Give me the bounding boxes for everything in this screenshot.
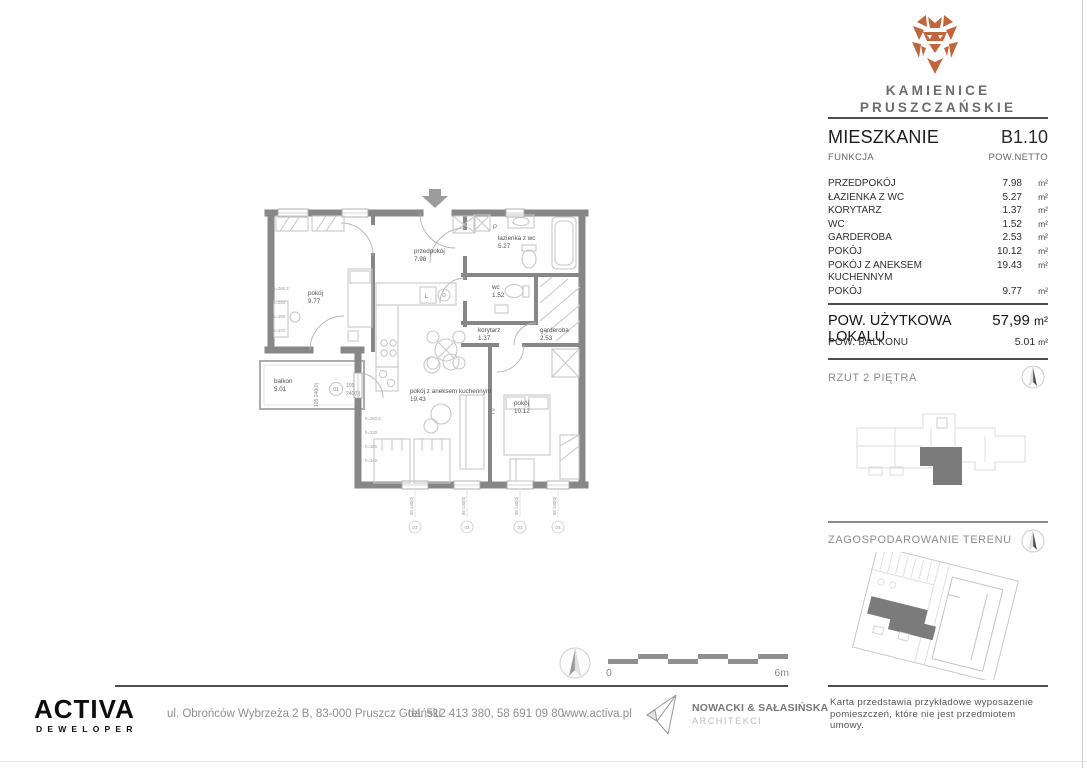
svg-text:03: 03 [517,525,523,530]
footer-website: www.activa.pl [562,708,632,720]
site-plan-map [835,552,1045,680]
plan-label-garderoba: garderoba [540,327,569,334]
svg-text:85 140(0): 85 140(0) [461,496,466,515]
developer-subtitle: DEWELOPER [36,724,138,734]
svg-text:03: 03 [555,525,561,530]
function-header: FUNKCJA POW.NETTO [828,152,1048,163]
page-bottom-edge [0,761,1087,762]
usable-area-unit: m² [1034,314,1048,328]
scale-end: 6m [774,667,789,679]
svg-text:h=220: h=220 [273,300,286,305]
room-row: ŁAZIENKA Z WC5.27m² [828,191,1048,205]
brand-line1: KAMIENICE [828,82,1048,99]
apartment-label: MIESZKANIE [828,127,1001,148]
svg-text:85 140(0): 85 140(0) [514,496,519,515]
svg-text:03: 03 [412,525,418,530]
svg-text:03: 03 [464,525,470,530]
plan-label-pokoj1: pokój [308,290,323,297]
room-list: PRZEDPOKÓJ7.98m² ŁAZIENKA Z WC5.27m² KOR… [828,177,1048,298]
footer-phone: tel. 512 413 380, 58 691 09 80 [408,708,564,720]
note-divider [828,685,1048,687]
usable-area-value: 57,99 [992,312,1030,329]
plan-label-pokoj2: pokój [514,400,529,407]
floor-plan: pokój 9.77 przedpokój 7.98 łazienka z wc… [252,183,604,553]
plan-area-lazienka: 5.27 [498,243,511,250]
developer-logo: ACTIVA DEWELOPER [34,696,138,734]
svg-text:h=180: h=180 [365,444,378,449]
divider [828,358,1048,360]
interior-walls [373,213,582,485]
divider [828,303,1048,305]
room-row: PRZEDPOKÓJ7.98m² [828,177,1048,191]
tv-label: TV [491,408,497,415]
compass-icon [1020,528,1046,554]
highlighted-unit [920,447,962,485]
svg-text:h=140: h=140 [365,458,378,463]
plan-area-garderoba: 2.53 [540,335,553,342]
balcony-door-tag: 105 240(0) 01 105 240(0) [314,382,361,407]
plan-label-wc: wc [491,284,500,291]
svg-text:h=260,2: h=260,2 [273,286,289,291]
divider [828,117,1048,119]
plan-area-pokoj2: 10.12 [514,408,530,415]
svg-text:105 240(0): 105 240(0) [314,382,320,407]
balcony-area-row: POW. BALKONU 5.01 m² [828,336,1048,348]
furniture [274,215,580,483]
footer-note: Karta przedstawia przykładowe wyposażeni… [830,697,1048,732]
entrance-arrow-icon [422,189,448,208]
plan-label-korytarz: korytarz [478,327,500,334]
plan-area-przedpokoj: 7.98 [414,256,427,263]
svg-text:01: 01 [333,387,339,393]
page-right-edge [1082,0,1083,768]
divider [828,521,1048,523]
room-row: POKÓJ Z ANEKSEM KUCHENNYM19.43m² [828,259,1048,285]
function-label: FUNKCJA [828,152,988,163]
room-row: POKÓJ9.77m² [828,285,1048,299]
balcony-area-unit: m² [1038,337,1048,347]
brand-line2: PRUSZCZAŃSKIE [828,99,1048,116]
site-section-title: ZAGOSPODAROWANIE TERENU [828,534,1012,546]
architect-block: NOWACKI & SAŁASIŃSKA ARCHITEKCI [692,702,828,726]
footer-address: ul. Obrońców Wybrzeża 2 B, 83-000 Pruszc… [167,708,441,720]
svg-text:h=220: h=220 [365,430,378,435]
plan-area-salon: 19.43 [410,396,426,403]
apartment-header: MIESZKANIE B1.10 [828,127,1048,148]
height-marks: h=260,2 h=220 h=180 h=140 h=260,2 h=220 … [273,286,381,463]
plan-area-wc: 1.52 [492,292,505,299]
architect-name: NOWACKI & SAŁASIŃSKA [692,702,828,714]
plan-label-salon: pokój z aneksem kuchennym [410,388,491,395]
room-row: KORYTARZ1.37m² [828,204,1048,218]
floor-section-title: RZUT 2 PIĘTRA [828,372,917,384]
room-row: POKÓJ10.12m² [828,245,1048,259]
brand-lion-logo-icon [907,13,963,79]
svg-text:85 140(0): 85 140(0) [409,496,414,515]
architect-logo-icon [644,692,686,740]
scale-bar: 0 6m [548,640,798,682]
plan-label-balkon: balkon [274,378,293,385]
note-line1: Karta przedstawia przykładowe wyposażeni… [830,697,1048,709]
note-line2: pomieszczeń, które nie jest przedmiotem … [830,709,1048,732]
plan-area-balkon: 5.01 [274,386,287,393]
svg-text:h=180: h=180 [273,314,286,319]
washer-label: P [493,225,497,231]
window-tags: 85 140(0) 85 140(0) 85 140(0) 85 140(0) … [409,489,564,533]
balcony-area-label: POW. BALKONU [828,337,1015,348]
plan-label-przedpokoj: przedpokój [414,248,445,255]
plan-area-korytarz: 1.37 [478,335,491,342]
svg-text:105: 105 [346,383,355,389]
svg-text:h=140: h=140 [273,328,286,333]
scale-start: 0 [606,667,612,679]
balcony-area-value: 5.01 [1015,336,1035,348]
svg-text:85 140(0): 85 140(0) [552,496,557,515]
apartment-card-page: pokój 9.77 przedpokój 7.98 łazienka z wc… [0,0,1087,768]
fridge-label: L [425,294,429,300]
apartment-number: B1.10 [1001,127,1048,148]
room-row: GARDEROBA2.53m² [828,231,1048,245]
footer-divider [115,685,788,687]
svg-text:240(0): 240(0) [346,391,361,397]
developer-name: ACTIVA [34,696,138,722]
plan-label-lazienka: łazienka z wc [498,235,535,242]
architect-subtitle: ARCHITEKCI [692,716,828,726]
brand-name: KAMIENICE PRUSZCZAŃSKIE [828,82,1048,116]
floor-location-map [835,398,1045,503]
room-row: WC1.52m² [828,218,1048,232]
compass-icon [1020,364,1046,390]
svg-text:h=260,2: h=260,2 [365,416,381,421]
plan-area-pokoj1: 9.77 [308,298,321,305]
net-area-label: POW.NETTO [988,152,1048,163]
